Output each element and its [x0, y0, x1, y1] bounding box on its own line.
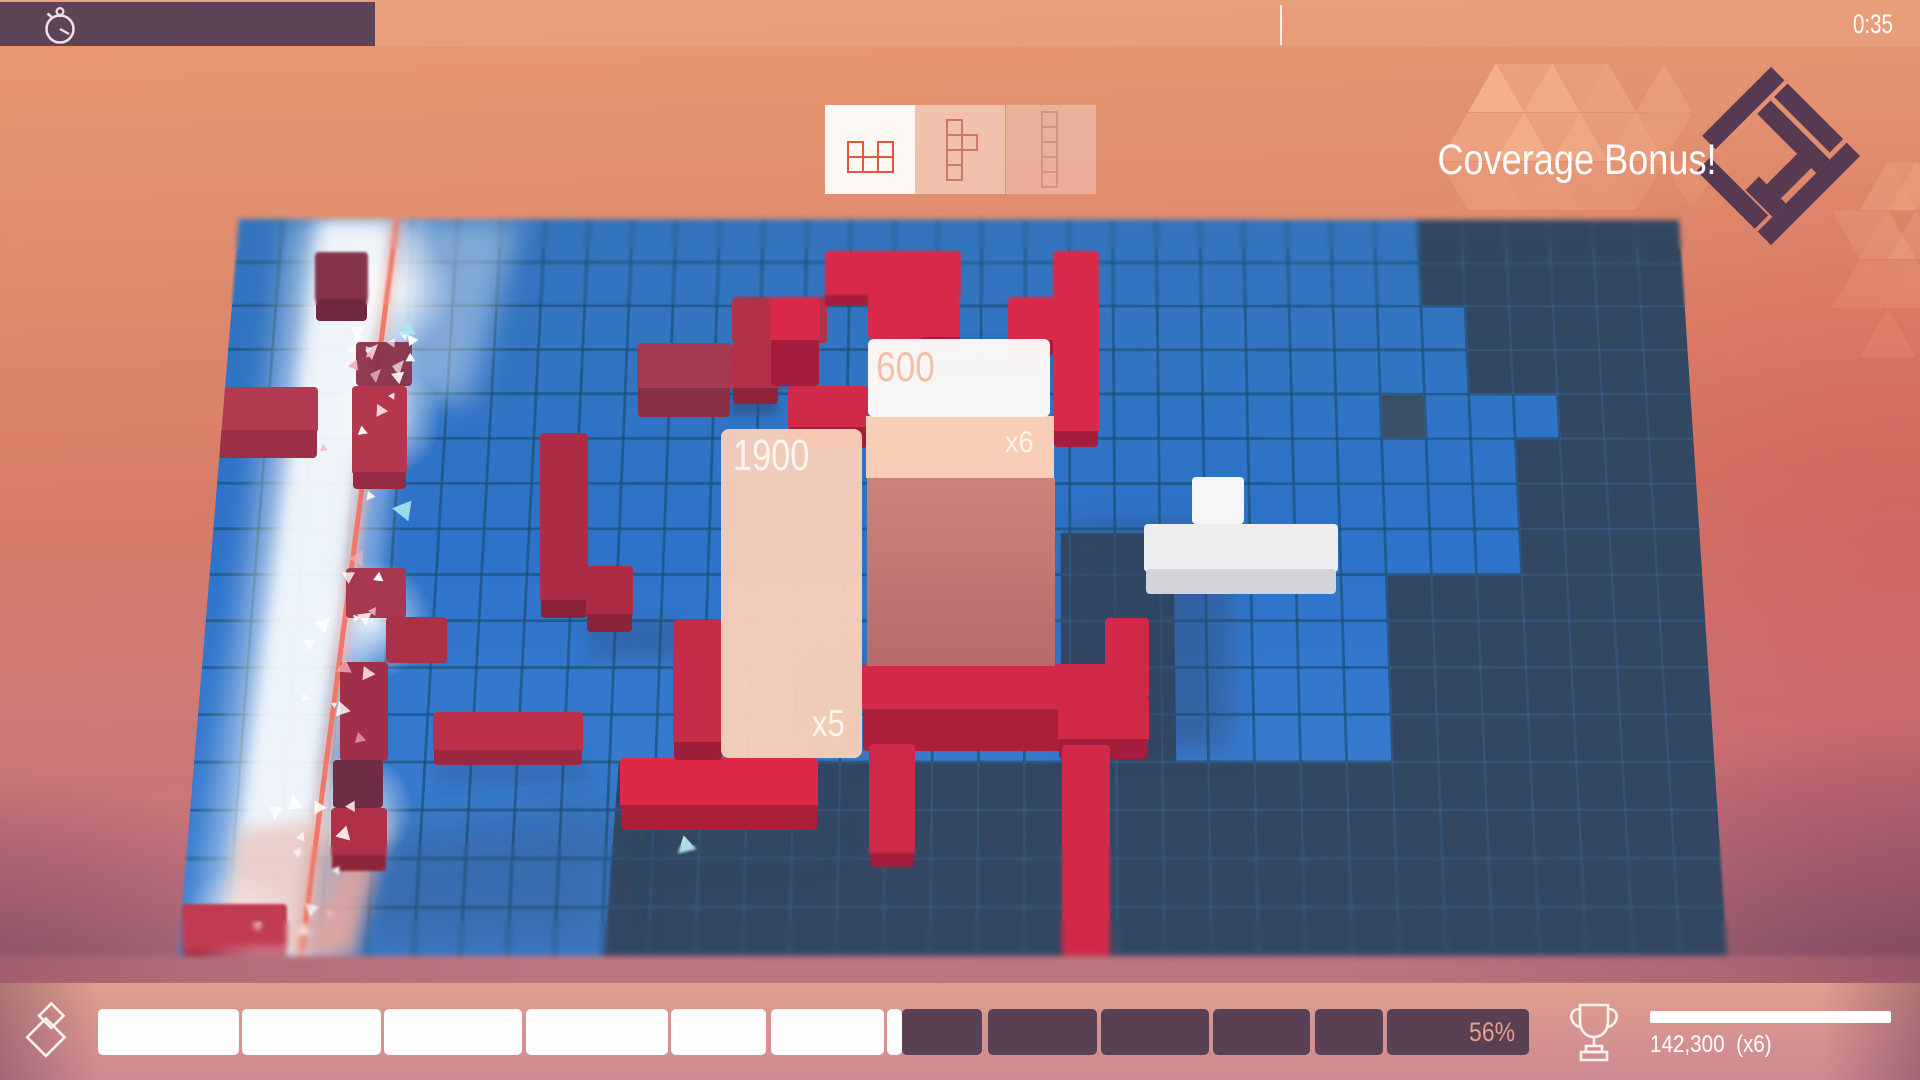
svg-text:x6: x6 — [1005, 426, 1034, 460]
svg-text:1900: 1900 — [733, 431, 809, 480]
svg-text:x5: x5 — [812, 704, 845, 745]
